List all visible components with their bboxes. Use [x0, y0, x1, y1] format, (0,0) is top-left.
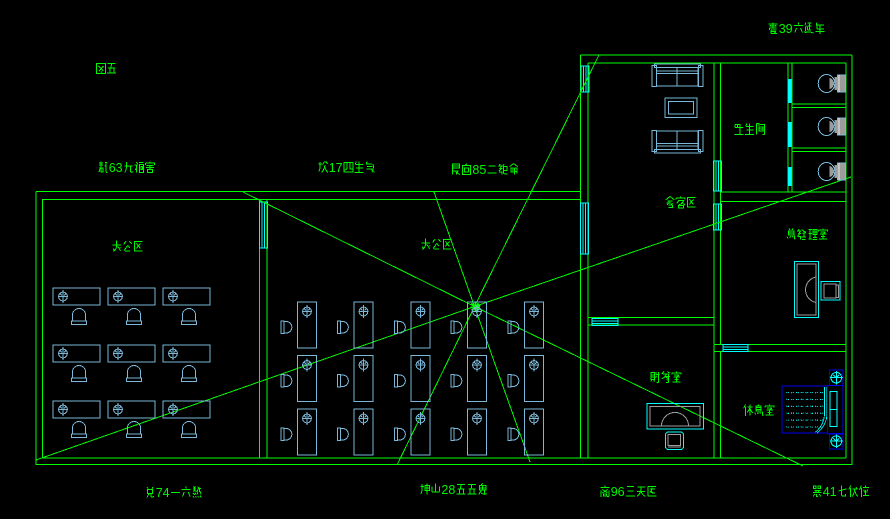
svg-text:74: 74 [156, 486, 170, 500]
svg-text:39: 39 [779, 22, 793, 36]
svg-text:28: 28 [441, 483, 455, 497]
svg-text:63: 63 [109, 161, 123, 175]
svg-text:96: 96 [611, 485, 625, 499]
svg-text:85: 85 [472, 163, 486, 177]
svg-text:17: 17 [329, 161, 343, 175]
svg-text:41: 41 [823, 485, 837, 499]
